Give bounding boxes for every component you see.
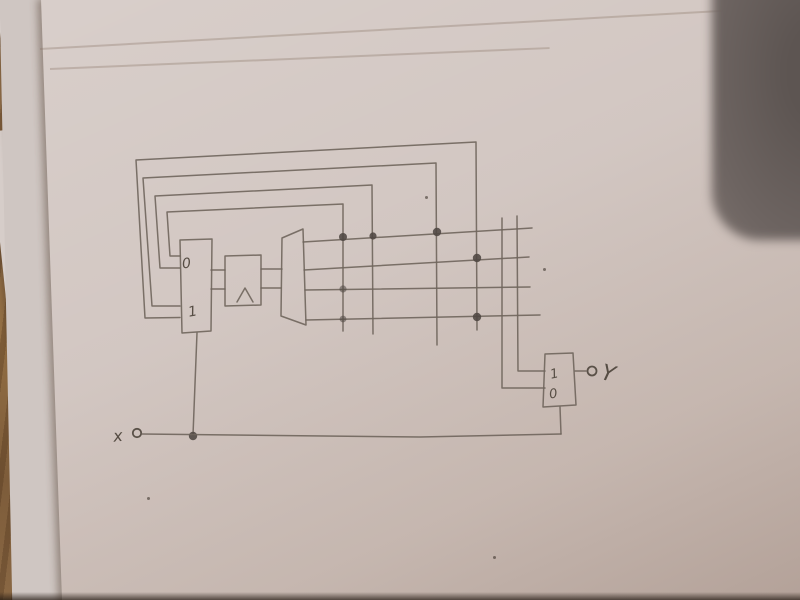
- output-terminal: [588, 367, 597, 376]
- junction-dot: [473, 254, 481, 262]
- output-selector-bottom-label: 0: [548, 386, 558, 402]
- x-input-wire: [142, 434, 561, 437]
- state-register-bottom-label: 1: [187, 303, 199, 320]
- dark-object-corner: [712, 0, 800, 240]
- photo-of-hand-drawn-logic-diagram: 0 1 1 0: [0, 0, 800, 600]
- bus-row-3: [305, 287, 530, 290]
- junction-dot: [369, 232, 376, 239]
- junction-dot: [473, 313, 481, 321]
- junction-dot: [339, 285, 346, 292]
- junction-dot: [433, 228, 441, 236]
- demux-trapezoid: [281, 229, 306, 325]
- selector-feed-line-bottom: [502, 218, 545, 388]
- selector-select-wire: [560, 407, 561, 434]
- bus-row-1: [303, 228, 532, 242]
- clock-caret-icon: [237, 288, 253, 302]
- input-terminal: [133, 429, 141, 437]
- input-label: x: [111, 426, 124, 446]
- bus-row-2: [304, 257, 529, 270]
- junction-dot: [340, 316, 347, 323]
- junction-dot: [189, 432, 197, 440]
- photo-bottom-shadow: [0, 592, 800, 600]
- register-to-x-wire: [193, 333, 197, 435]
- incrementer-box: [225, 255, 261, 306]
- output-label: Y: [599, 360, 620, 388]
- selector-feed-line-top: [517, 216, 545, 371]
- state-register-top-label: 0: [181, 256, 192, 273]
- pencil-circuit-drawing: 0 1 1 0: [0, 0, 800, 600]
- output-selector-top-label: 1: [549, 366, 560, 382]
- junction-dot: [339, 233, 347, 241]
